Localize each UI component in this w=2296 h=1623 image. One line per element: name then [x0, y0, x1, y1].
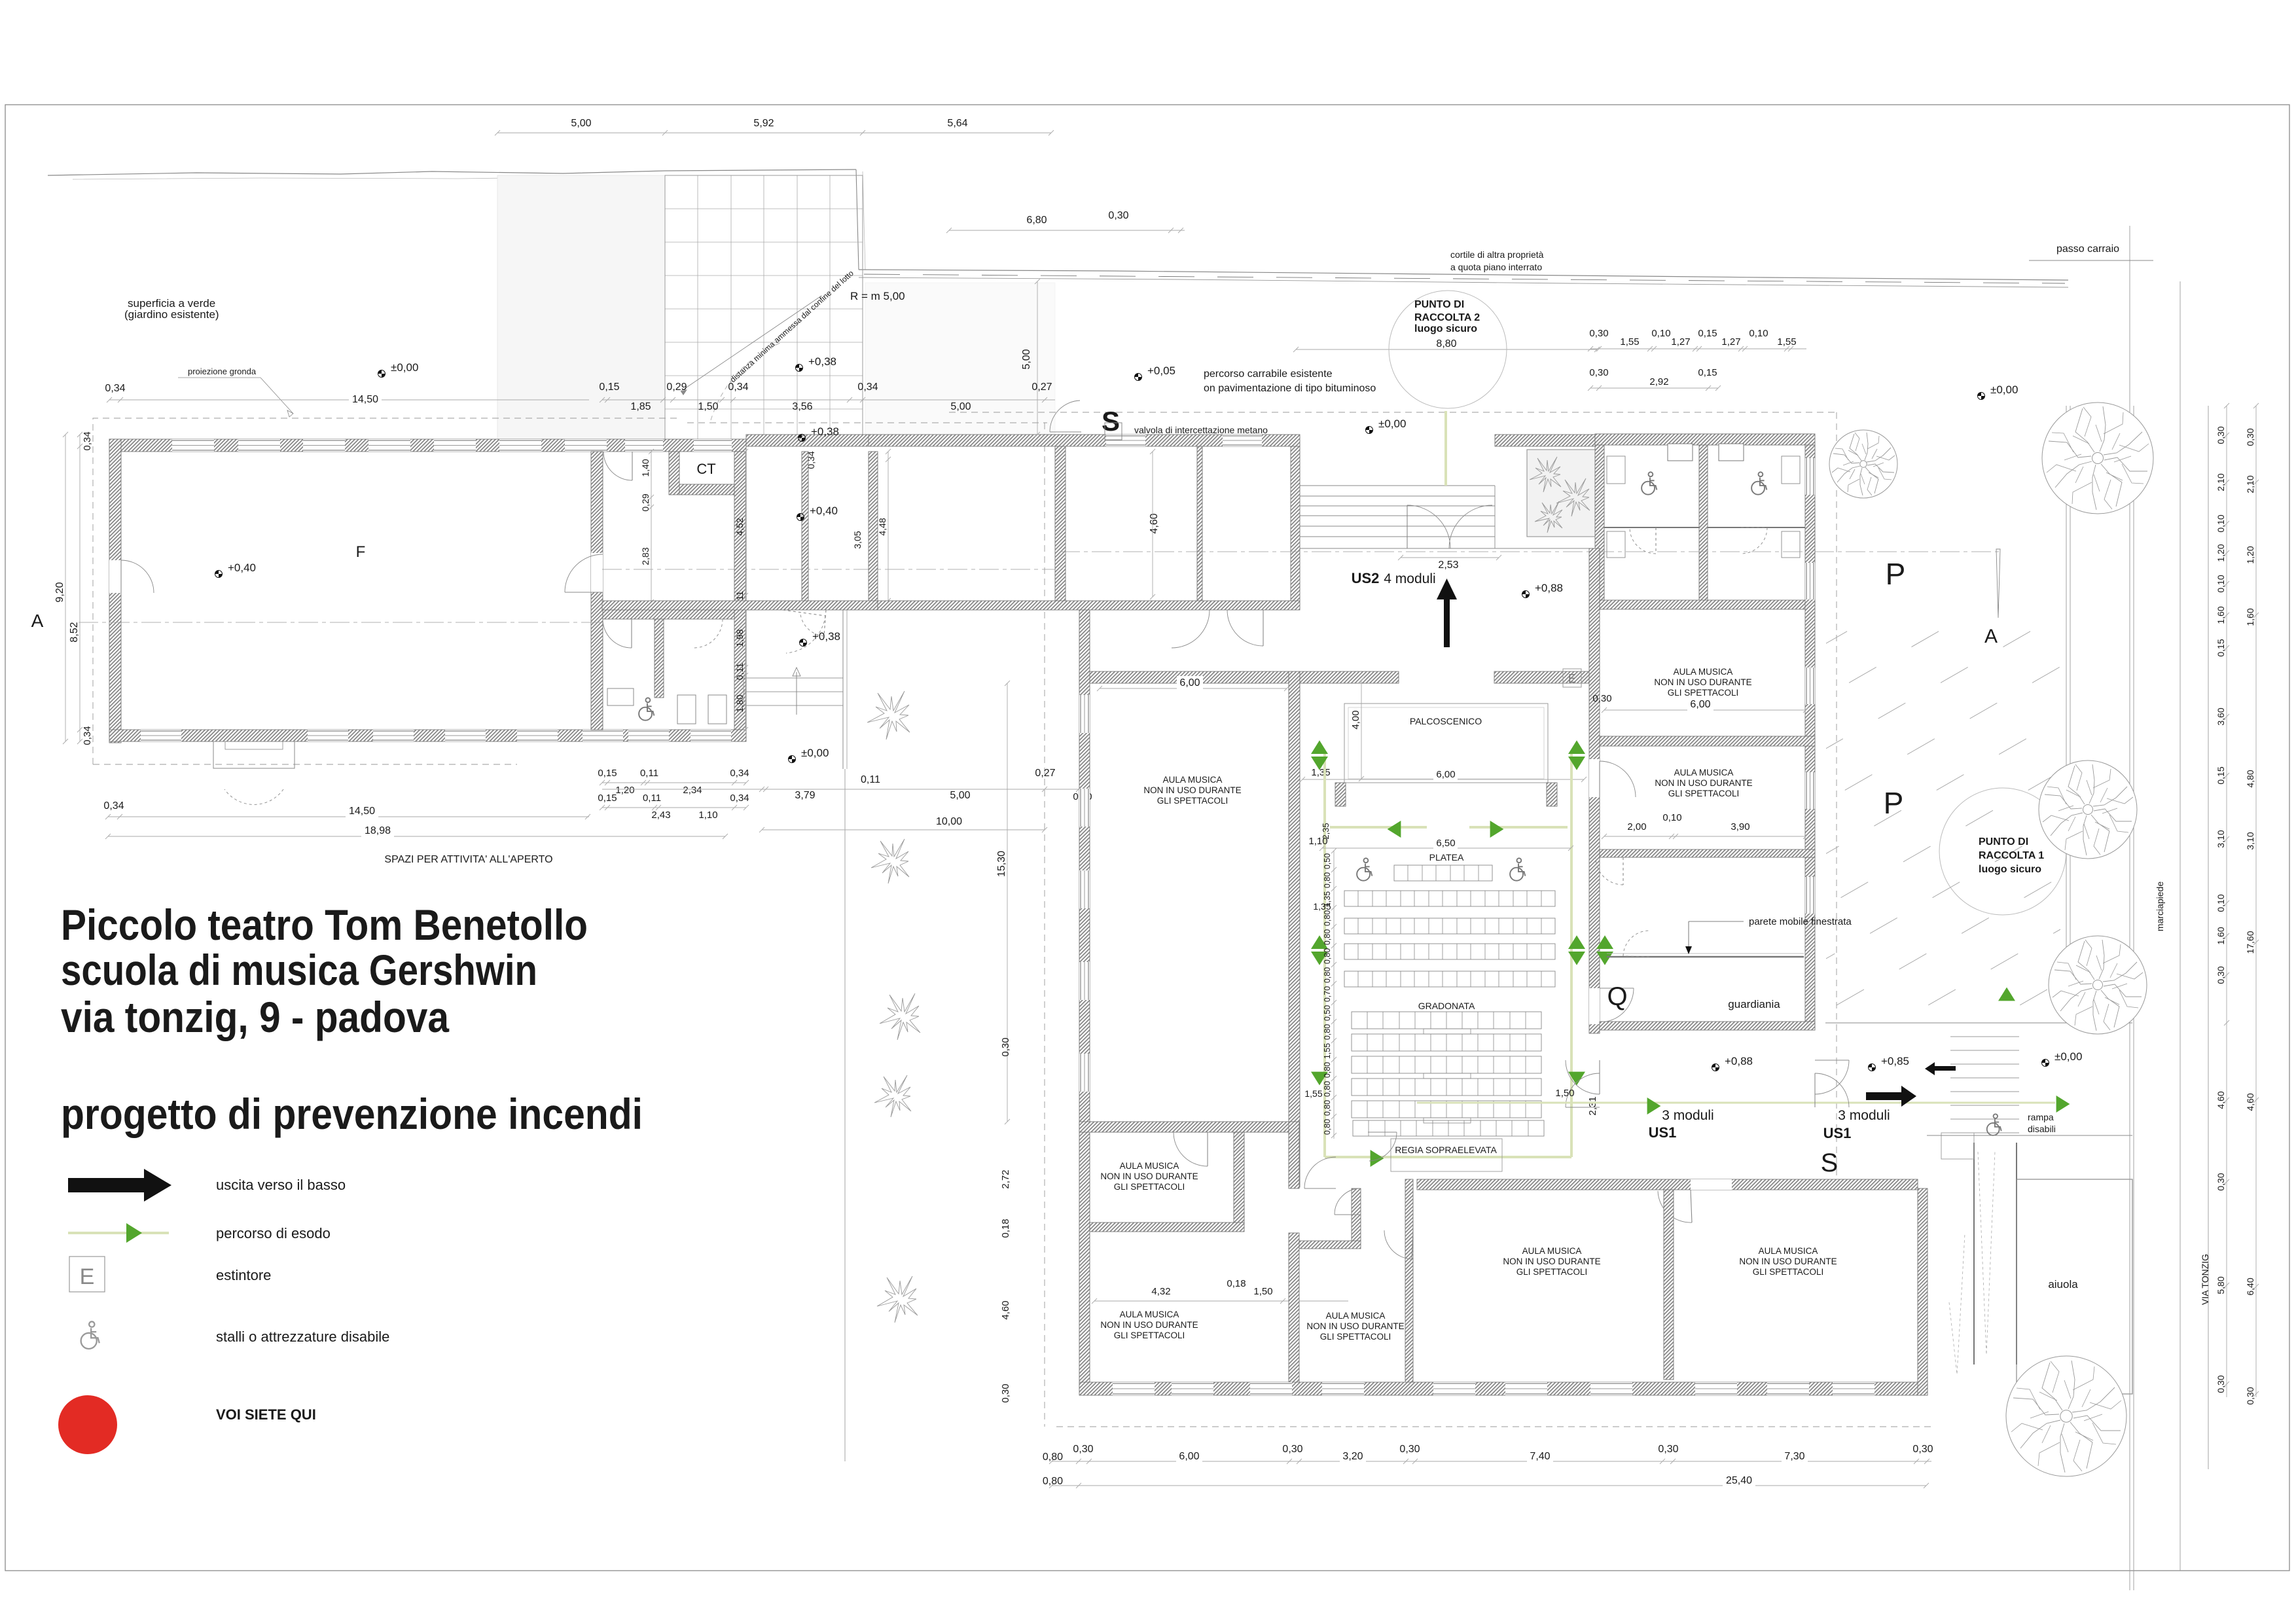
svg-text:GLI SPETTACOLI: GLI SPETTACOLI [1157, 796, 1229, 806]
svg-text:percorso carrabile esistente: percorso carrabile esistente [1204, 368, 1333, 380]
svg-text:GLI SPETTACOLI: GLI SPETTACOLI [1668, 688, 1739, 698]
svg-text:±0,00: ±0,00 [391, 361, 418, 374]
svg-text:aiuola: aiuola [2048, 1278, 2078, 1291]
svg-text:5,00: 5,00 [571, 118, 591, 129]
svg-text:Piccolo teatro Tom Benetollo: Piccolo teatro Tom Benetollo [61, 901, 588, 949]
svg-text:4,48: 4,48 [877, 518, 888, 535]
svg-text:0,18: 0,18 [1227, 1278, 1246, 1289]
svg-text:3 moduli: 3 moduli [1838, 1108, 1890, 1123]
svg-text:0,11: 0,11 [640, 768, 658, 779]
svg-text:5,64: 5,64 [947, 118, 967, 129]
svg-text:0,30: 0,30 [1658, 1444, 1678, 1455]
svg-text:+0,38: +0,38 [811, 425, 839, 438]
svg-text:0,30: 0,30 [2215, 1173, 2226, 1190]
svg-text:0,80: 0,80 [1323, 1100, 1332, 1116]
svg-text:S: S [1821, 1149, 1839, 1177]
svg-text:AULA MUSICA: AULA MUSICA [1120, 1161, 1179, 1171]
svg-text:NON IN USO DURANTE: NON IN USO DURANTE [1503, 1257, 1600, 1266]
svg-text:0,80: 0,80 [1043, 1452, 1063, 1463]
svg-text:0,10: 0,10 [2215, 575, 2226, 592]
svg-text:0,10: 0,10 [2215, 514, 2226, 532]
svg-text:1,20: 1,20 [2215, 544, 2226, 562]
svg-text:1,60: 1,60 [2215, 927, 2226, 944]
svg-text:0,29: 0,29 [640, 493, 651, 511]
svg-text:0,15: 0,15 [598, 768, 617, 779]
svg-text:0,80: 0,80 [1323, 1119, 1332, 1135]
svg-text:0,30: 0,30 [1589, 328, 1608, 339]
svg-text:0,50: 0,50 [1323, 853, 1332, 869]
svg-text:0,15: 0,15 [2215, 639, 2226, 656]
svg-text:1,35: 1,35 [1313, 901, 1331, 912]
svg-text:1,60: 1,60 [2245, 608, 2255, 626]
svg-text:3,56: 3,56 [792, 401, 812, 412]
svg-text:RACCOLTA 1: RACCOLTA 1 [1979, 850, 2044, 861]
svg-text:CT: CT [696, 461, 715, 477]
svg-text:+0,88: +0,88 [1725, 1055, 1753, 1067]
svg-text:GLI SPETTACOLI: GLI SPETTACOLI [1668, 789, 1740, 798]
svg-text:0,80: 0,80 [1043, 1476, 1063, 1487]
svg-text:GRADONATA: GRADONATA [1418, 1001, 1475, 1011]
svg-text:0,34: 0,34 [82, 431, 93, 450]
svg-text:0,11: 0,11 [734, 663, 745, 680]
svg-text:AULA MUSICA: AULA MUSICA [1326, 1311, 1386, 1321]
svg-text:1,60: 1,60 [2215, 606, 2226, 624]
svg-text:0,80: 0,80 [1323, 948, 1332, 964]
svg-text:6,00: 6,00 [1690, 699, 1710, 710]
svg-text:2,31: 2,31 [1587, 1096, 1598, 1115]
svg-text:1,50: 1,50 [1555, 1088, 1574, 1099]
svg-text:+0,85: +0,85 [1881, 1055, 1909, 1067]
svg-text:1,10: 1,10 [698, 810, 717, 821]
svg-text:AULA MUSICA: AULA MUSICA [1674, 667, 1733, 677]
svg-text:+0,40: +0,40 [228, 562, 256, 574]
svg-text:0,34: 0,34 [730, 768, 749, 779]
svg-text:PUNTO DI: PUNTO DI [1414, 299, 1464, 310]
svg-text:±0,00: ±0,00 [801, 747, 829, 759]
svg-text:US2: US2 [1352, 570, 1380, 586]
svg-text:5,92: 5,92 [753, 118, 774, 129]
svg-text:6,00: 6,00 [1179, 677, 1200, 688]
svg-text:0,80: 0,80 [1323, 1081, 1332, 1097]
svg-text:0,10: 0,10 [2215, 894, 2226, 912]
svg-text:0,80: 0,80 [1323, 872, 1332, 888]
svg-text:1,55: 1,55 [1304, 1088, 1322, 1099]
svg-text:0,30: 0,30 [2245, 428, 2255, 446]
svg-text:REGIA SOPRAELEVATA: REGIA SOPRAELEVATA [1395, 1145, 1497, 1155]
svg-text:0,15: 0,15 [1698, 328, 1717, 339]
svg-text:8,80: 8,80 [1436, 338, 1456, 349]
svg-text:1,27: 1,27 [1721, 336, 1740, 348]
svg-text:guardiania: guardiania [1728, 998, 1780, 1010]
svg-text:6,40: 6,40 [2245, 1277, 2255, 1295]
svg-text:E: E [80, 1264, 95, 1289]
svg-text:14,50: 14,50 [349, 806, 375, 817]
svg-text:progetto di prevenzione incend: progetto di prevenzione incendi [61, 1090, 643, 1138]
svg-text:1,20: 1,20 [615, 785, 634, 796]
svg-text:PALCOSCENICO: PALCOSCENICO [1410, 716, 1482, 726]
svg-text:3,90: 3,90 [1731, 821, 1749, 832]
svg-text:1,35: 1,35 [1311, 767, 1330, 778]
svg-text:0,27: 0,27 [1035, 768, 1055, 779]
svg-text:1,85: 1,85 [630, 401, 651, 412]
svg-text:0,30: 0,30 [1912, 1444, 1933, 1455]
svg-text:2,92: 2,92 [1649, 376, 1668, 387]
svg-text:uscita verso il basso: uscita verso il basso [216, 1177, 346, 1193]
svg-text:0,80: 0,80 [1323, 1024, 1332, 1040]
svg-text:6,80: 6,80 [1026, 215, 1047, 226]
svg-text:1,55: 1,55 [1777, 336, 1796, 348]
svg-text:A: A [1984, 626, 1998, 647]
svg-text:3,79: 3,79 [795, 790, 815, 801]
svg-text:0,10: 0,10 [1662, 812, 1681, 823]
svg-text:2,83: 2,83 [640, 547, 651, 565]
svg-text:0,30: 0,30 [2215, 966, 2226, 984]
svg-text:0,30: 0,30 [1000, 1383, 1011, 1402]
svg-text:0,80: 0,80 [1323, 1062, 1332, 1078]
svg-text:1,40: 1,40 [640, 459, 651, 476]
svg-text:9,20: 9,20 [54, 582, 65, 602]
svg-text:2,10: 2,10 [2245, 475, 2255, 493]
svg-text:0,30: 0,30 [1399, 1444, 1420, 1455]
svg-text:2,10: 2,10 [2215, 473, 2226, 491]
svg-text:0,80: 0,80 [1323, 967, 1332, 983]
svg-text:0,30: 0,30 [1108, 210, 1128, 221]
svg-text:US1: US1 [1649, 1124, 1677, 1141]
svg-text:NON IN USO DURANTE: NON IN USO DURANTE [1739, 1257, 1837, 1266]
svg-text:luogo sicuro: luogo sicuro [1414, 323, 1477, 334]
svg-text:US1: US1 [1823, 1125, 1852, 1141]
svg-text:3,20: 3,20 [1342, 1451, 1363, 1462]
svg-text:+0,88: +0,88 [1535, 582, 1563, 594]
svg-text:5,00: 5,00 [950, 401, 971, 412]
svg-text:0,34: 0,34 [103, 800, 124, 811]
svg-text:3,10: 3,10 [2245, 832, 2255, 849]
svg-text:3,60: 3,60 [2215, 707, 2226, 725]
svg-text:NON IN USO DURANTE: NON IN USO DURANTE [1143, 785, 1241, 795]
svg-text:7,30: 7,30 [1784, 1451, 1804, 1462]
svg-text:F: F [356, 543, 366, 561]
svg-text:0,30: 0,30 [2245, 1387, 2255, 1404]
svg-text:parete mobile finestrata: parete mobile finestrata [1749, 916, 1852, 927]
svg-text:R = m 5,00: R = m 5,00 [850, 290, 905, 302]
svg-text:5,00: 5,00 [950, 790, 970, 801]
svg-text:P: P [1884, 786, 1904, 820]
svg-text:NON IN USO DURANTE: NON IN USO DURANTE [1654, 677, 1751, 687]
svg-text:passo carraio: passo carraio [2056, 243, 2119, 255]
svg-text:1,55: 1,55 [1620, 336, 1639, 348]
svg-text:+0,05: +0,05 [1147, 365, 1175, 377]
svg-text:scuola di musica Gershwin: scuola di musica Gershwin [61, 946, 537, 994]
svg-text:0,30: 0,30 [1282, 1444, 1302, 1455]
svg-text:2,35: 2,35 [1321, 823, 1331, 839]
svg-text:0,30: 0,30 [2215, 1375, 2226, 1393]
svg-text:S: S [1102, 406, 1120, 437]
svg-text:0,15: 0,15 [2215, 766, 2226, 784]
svg-text:10,00: 10,00 [936, 816, 962, 827]
svg-text:2,34: 2,34 [683, 785, 702, 796]
svg-text:15,30: 15,30 [996, 851, 1007, 877]
svg-text:disabili: disabili [2028, 1124, 2056, 1134]
svg-text:4,52: 4,52 [734, 518, 745, 535]
svg-text:2,00: 2,00 [1627, 821, 1646, 832]
svg-text:SPAZI PER ATTIVITA' ALL'APERTO: SPAZI PER ATTIVITA' ALL'APERTO [384, 854, 552, 865]
svg-text:AULA MUSICA: AULA MUSICA [1759, 1246, 1818, 1256]
svg-text:AULA MUSICA: AULA MUSICA [1120, 1310, 1179, 1319]
svg-text:PLATEA: PLATEA [1429, 852, 1464, 863]
svg-text:17,60: 17,60 [2245, 931, 2255, 954]
svg-text:estintore: estintore [216, 1267, 271, 1283]
svg-text:NON IN USO DURANTE: NON IN USO DURANTE [1306, 1321, 1404, 1331]
svg-text:GLI SPETTACOLI: GLI SPETTACOLI [1753, 1267, 1824, 1277]
svg-text:4 moduli: 4 moduli [1384, 571, 1435, 586]
svg-text:14,50: 14,50 [352, 394, 378, 405]
svg-text:GLI SPETTACOLI: GLI SPETTACOLI [1114, 1330, 1185, 1340]
svg-text:NON IN USO DURANTE: NON IN USO DURANTE [1655, 778, 1752, 788]
svg-text:2,43: 2,43 [651, 810, 670, 821]
svg-text:E: E [1568, 672, 1576, 685]
svg-text:8,52: 8,52 [69, 622, 80, 642]
svg-text:A: A [31, 611, 44, 631]
svg-text:percorso di esodo: percorso di esodo [216, 1225, 331, 1241]
svg-text:2,53: 2,53 [1438, 560, 1458, 571]
svg-text:0,11: 0,11 [643, 793, 661, 804]
svg-text:0,80: 0,80 [1323, 929, 1332, 945]
svg-text:3,10: 3,10 [2215, 830, 2226, 847]
svg-text:0,50: 0,50 [1323, 1005, 1332, 1021]
svg-text:P: P [1886, 557, 1906, 591]
svg-text:luogo sicuro: luogo sicuro [1979, 864, 2041, 875]
svg-text:5,80: 5,80 [2215, 1276, 2226, 1294]
svg-text:0,34: 0,34 [728, 382, 748, 393]
svg-text:GLI SPETTACOLI: GLI SPETTACOLI [1516, 1267, 1588, 1277]
svg-text:0,34: 0,34 [82, 726, 93, 745]
svg-text:Q: Q [1607, 982, 1627, 1011]
svg-text:25,40: 25,40 [1726, 1475, 1752, 1486]
svg-text:VOI SIETE QUI: VOI SIETE QUI [216, 1406, 316, 1423]
svg-text:via tonzig, 9 - padova: via tonzig, 9 - padova [61, 993, 450, 1041]
svg-text:4,60: 4,60 [2215, 1091, 2226, 1109]
svg-text:6,00: 6,00 [1179, 1451, 1199, 1462]
svg-text:6,50: 6,50 [1436, 838, 1455, 849]
svg-text:0,15: 0,15 [598, 793, 617, 804]
svg-text:0,15: 0,15 [599, 382, 619, 393]
svg-text:marciapiede: marciapiede [2155, 882, 2165, 931]
svg-text:0,15: 0,15 [1698, 367, 1717, 378]
svg-text:4,00: 4,00 [1350, 710, 1361, 729]
svg-text:0,29: 0,29 [666, 382, 687, 393]
svg-text:3,05: 3,05 [852, 531, 863, 548]
svg-text:on pavimentazione di tipo bitu: on pavimentazione di tipo bituminoso [1204, 383, 1376, 394]
svg-text:1,27: 1,27 [1671, 336, 1690, 348]
svg-text:AULA MUSICA: AULA MUSICA [1522, 1246, 1582, 1256]
svg-text:0,70: 0,70 [1323, 986, 1332, 1002]
svg-text:±0,00: ±0,00 [2054, 1050, 2082, 1063]
svg-text:0,10: 0,10 [1749, 328, 1768, 339]
svg-text:GLI SPETTACOLI: GLI SPETTACOLI [1114, 1182, 1185, 1192]
svg-text:valvola di intercettazione met: valvola di intercettazione metano [1134, 425, 1268, 435]
svg-text:AULA MUSICA: AULA MUSICA [1163, 775, 1223, 785]
svg-text:PUNTO DI: PUNTO DI [1979, 836, 2028, 847]
svg-text:0,11: 0,11 [861, 774, 880, 785]
svg-text:0,27: 0,27 [1031, 382, 1052, 393]
svg-text:±0,00: ±0,00 [1990, 383, 2018, 396]
svg-text:4,80: 4,80 [2245, 770, 2255, 787]
svg-text:0,30: 0,30 [1589, 367, 1608, 378]
svg-text:4,60: 4,60 [1000, 1300, 1011, 1319]
svg-text:VIA TONZIG: VIA TONZIG [2200, 1254, 2210, 1305]
svg-text:0,30: 0,30 [2215, 426, 2226, 444]
svg-text:+0,40: +0,40 [810, 505, 838, 517]
svg-text:3 moduli: 3 moduli [1662, 1108, 1713, 1123]
svg-text:2,72: 2,72 [1000, 1169, 1011, 1188]
svg-text:18,98: 18,98 [365, 825, 391, 836]
svg-text:0,30: 0,30 [1073, 1444, 1093, 1455]
svg-text:0,30: 0,30 [1592, 693, 1611, 704]
svg-text:±0,00: ±0,00 [1378, 418, 1406, 430]
svg-text:RACCOLTA 2: RACCOLTA 2 [1414, 312, 1480, 323]
svg-text:5,00: 5,00 [1021, 349, 1032, 369]
svg-text:NON IN USO DURANTE: NON IN USO DURANTE [1100, 1171, 1198, 1181]
svg-text:+0,38: +0,38 [808, 355, 836, 368]
svg-text:stalli o attrezzature disabile: stalli o attrezzature disabile [216, 1329, 389, 1345]
svg-text:1,50: 1,50 [1253, 1286, 1272, 1297]
svg-text:1,20: 1,20 [2245, 546, 2255, 563]
svg-text:GLI SPETTACOLI: GLI SPETTACOLI [1320, 1332, 1391, 1342]
svg-text:0,80: 0,80 [1323, 910, 1332, 926]
svg-text:0,34: 0,34 [105, 383, 125, 394]
svg-text:0,30: 0,30 [1000, 1037, 1011, 1056]
svg-text:proiezione gronda: proiezione gronda [188, 366, 257, 376]
svg-text:rampa: rampa [2028, 1112, 2054, 1122]
svg-text:NON IN USO DURANTE: NON IN USO DURANTE [1100, 1320, 1198, 1330]
svg-text:0,34: 0,34 [730, 793, 749, 804]
svg-text:cortile di altra proprietà: cortile di altra proprietà [1450, 249, 1544, 260]
svg-text:4,60: 4,60 [2245, 1093, 2255, 1111]
svg-text:0,10: 0,10 [1651, 328, 1670, 339]
svg-text:AULA MUSICA: AULA MUSICA [1674, 768, 1734, 777]
svg-text:7,40: 7,40 [1530, 1451, 1550, 1462]
svg-text:1,98: 1,98 [734, 629, 745, 647]
svg-text:6,00: 6,00 [1436, 769, 1455, 780]
svg-text:4,32: 4,32 [1151, 1286, 1170, 1297]
svg-text:1,50: 1,50 [698, 401, 718, 412]
svg-text:(giardino esistente): (giardino esistente) [124, 308, 219, 321]
svg-text:0,34: 0,34 [857, 382, 878, 393]
svg-text:0,18: 0,18 [1000, 1219, 1011, 1238]
svg-text:1,55: 1,55 [1323, 1043, 1332, 1059]
svg-text:4,60: 4,60 [1149, 513, 1160, 533]
svg-text:a quota piano interrato: a quota piano interrato [1450, 262, 1542, 272]
